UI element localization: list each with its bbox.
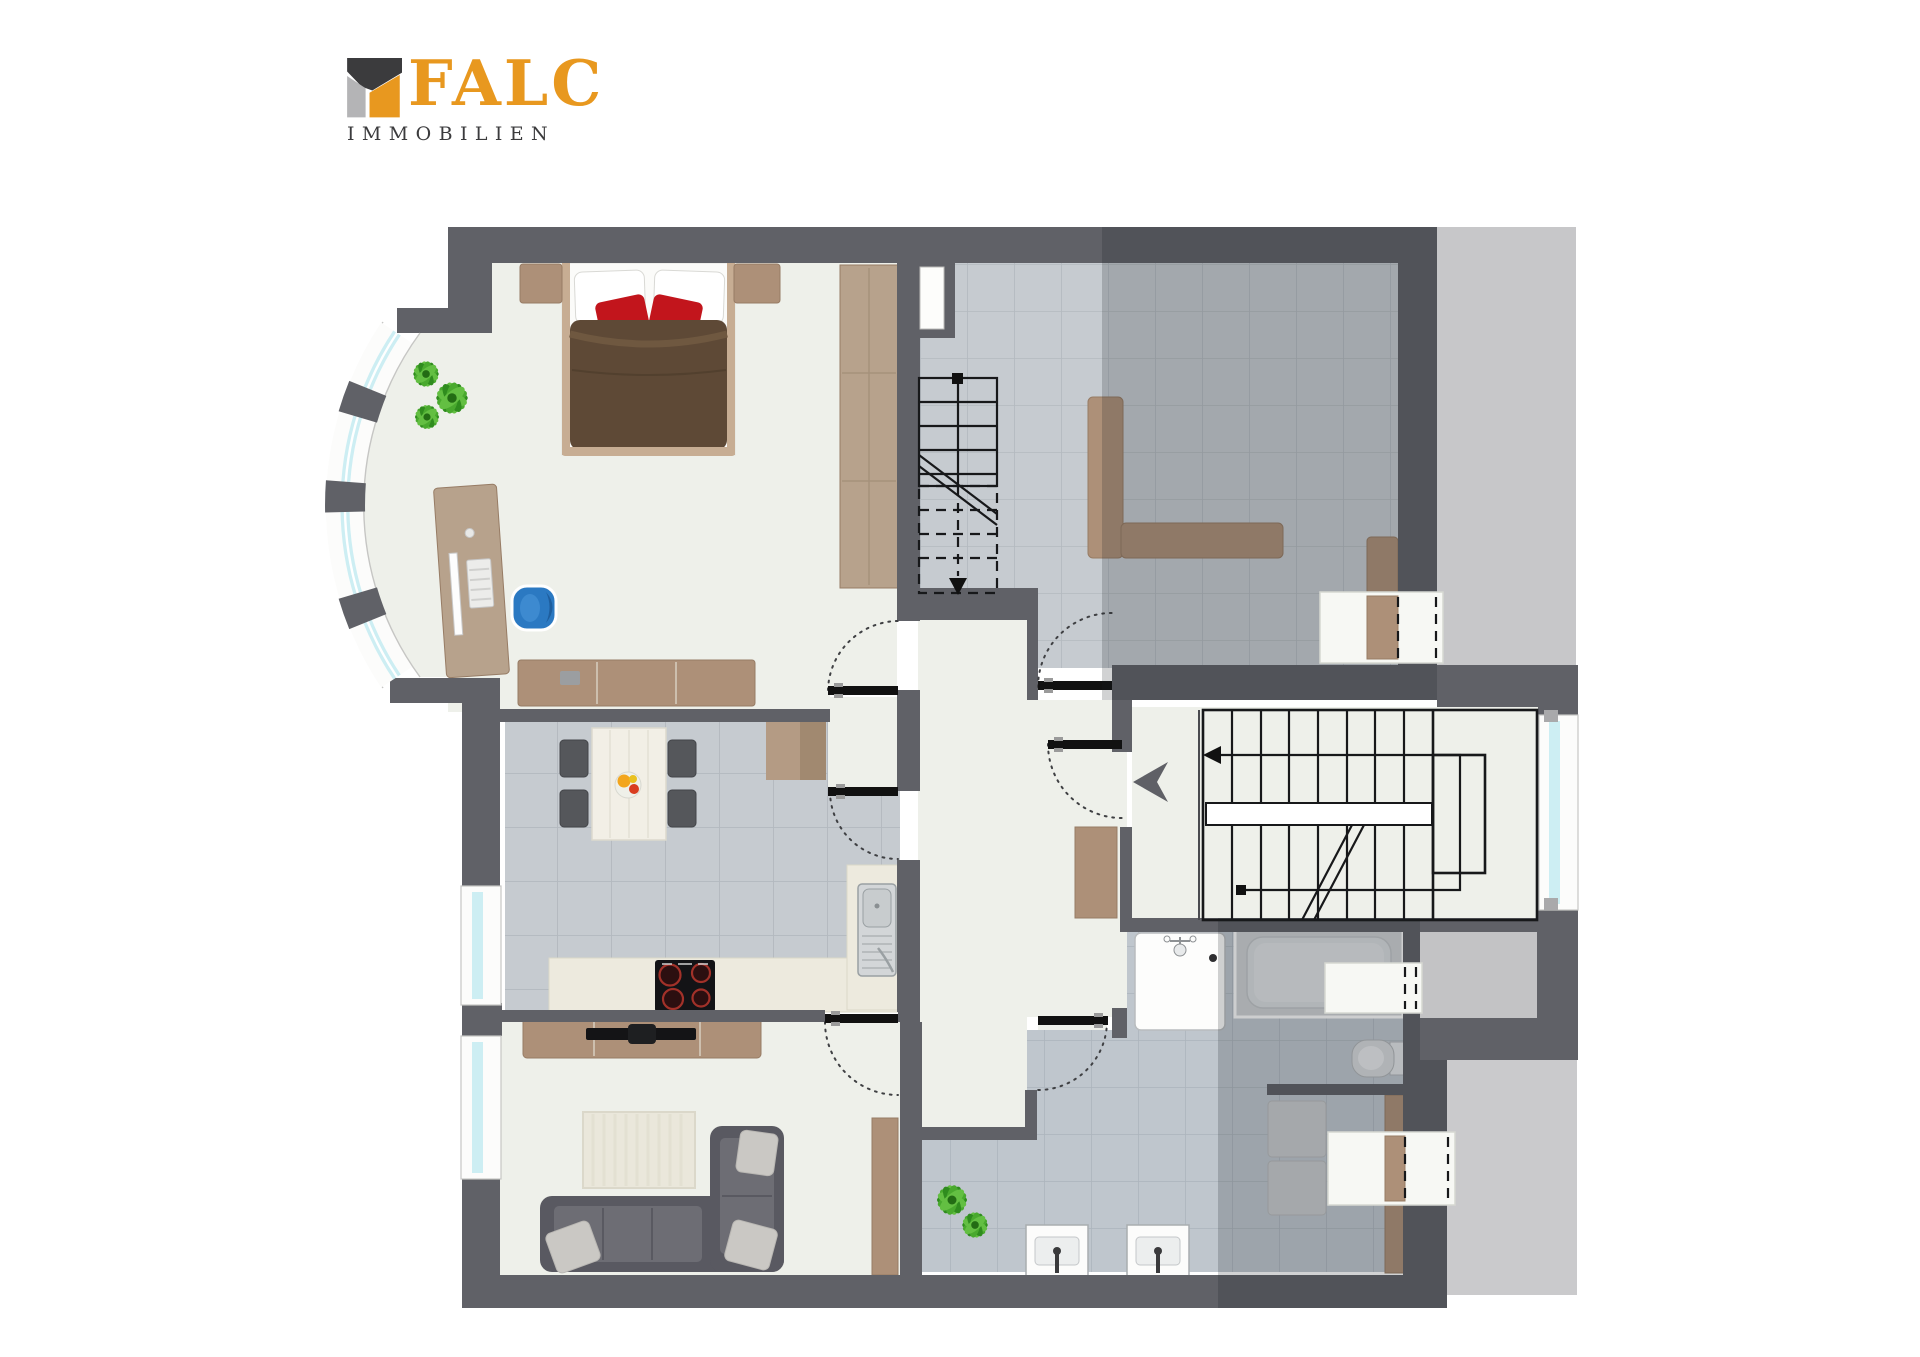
window-stairwell [1539,710,1578,910]
hallway-wardrobe [1075,827,1117,918]
nightstand-left [520,264,562,303]
wardrobe [840,265,898,588]
hallway-notch-floor [828,697,900,788]
sofa-cushion [735,1130,778,1177]
window-living-2 [461,1036,501,1179]
stair-landing-rail [1206,803,1432,825]
exterior-shaft [1420,930,1537,1018]
towel-rail-bathtub [1325,963,1422,1013]
dressing-table-bathroom [1328,1132,1455,1205]
rug [583,1112,695,1188]
washbasin-left [1026,1225,1088,1277]
exterior-block-top-right [1437,227,1576,688]
wall-niche [920,267,944,329]
desk [433,484,509,678]
keyboard [467,559,494,609]
bay-window-pillar [358,388,368,417]
nightstand-right [734,264,780,303]
kitchen-sink [858,884,896,976]
floor-plan [0,0,1920,1357]
bedroom-sideboard [518,660,755,706]
living-room-cabinet [872,1118,898,1275]
window-living-1 [461,886,501,1005]
bay-window-pillar [345,482,346,512]
exterior-block-bottom-right [1447,1060,1577,1295]
cooktop [655,960,715,1012]
bay-window-pillar [358,593,368,622]
washbasin-right [1127,1225,1189,1277]
desk-chair [512,586,556,630]
dressing-table-storage [1320,592,1443,663]
double-bed [562,263,735,456]
bathroom-floor-left [922,1140,1027,1272]
tv-board [523,1018,761,1058]
page: FALC IMMOBILIEN [0,0,1920,1357]
hallway-floor [918,618,1027,1127]
fruit-bowl [615,772,641,798]
mouse [465,528,475,538]
shower [1135,933,1225,1030]
kitchen-cabinet [766,722,826,780]
